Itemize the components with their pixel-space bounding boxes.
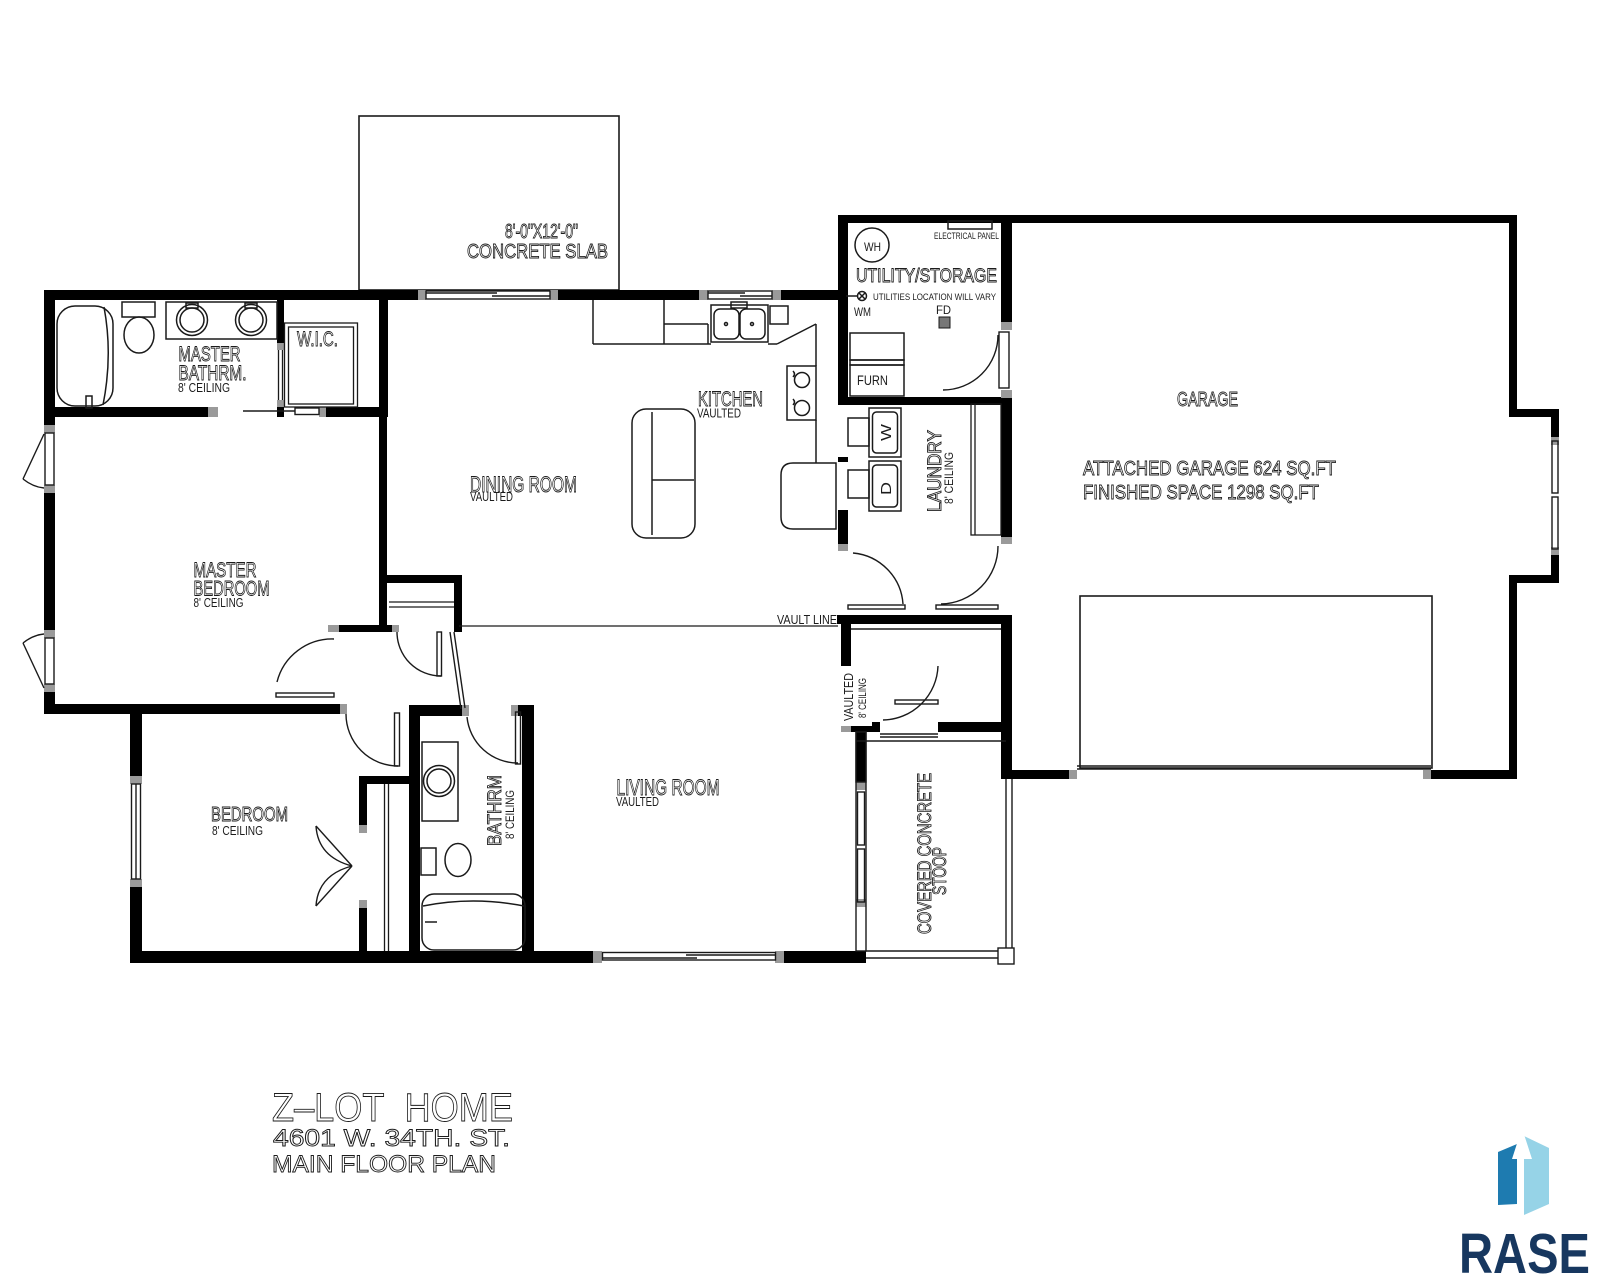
svg-text:VAULTED: VAULTED: [842, 673, 856, 721]
svg-text:8'-0"X12'-0": 8'-0"X12'-0": [505, 221, 578, 243]
svg-text:8' CEILING: 8' CEILING: [178, 380, 230, 395]
svg-text:8' CEILING: 8' CEILING: [212, 823, 263, 838]
svg-text:VAULTED: VAULTED: [470, 489, 513, 504]
svg-text:STOOP: STOOP: [930, 847, 951, 895]
svg-text:UTILITIES LOCATION WILL VARY: UTILITIES LOCATION WILL VARY: [873, 292, 997, 303]
svg-text:FURN: FURN: [857, 372, 888, 388]
svg-text:FD: FD: [936, 303, 951, 317]
svg-text:VAULT LINE: VAULT LINE: [777, 613, 837, 627]
svg-text:8' CEILING: 8' CEILING: [857, 678, 869, 718]
svg-text:WM: WM: [854, 305, 871, 319]
svg-text:8' CEILING: 8' CEILING: [194, 595, 244, 610]
svg-text:WH: WH: [864, 240, 881, 254]
svg-text:D: D: [878, 482, 895, 495]
svg-text:GARAGE: GARAGE: [1177, 389, 1238, 411]
svg-text:Z–LOT HOME: Z–LOT HOME: [272, 1086, 513, 1130]
svg-text:UTILITY/STORAGE: UTILITY/STORAGE: [856, 266, 997, 287]
svg-text:ELECTRICAL PANEL: ELECTRICAL PANEL: [934, 231, 999, 241]
svg-text:FINISHED SPACE 1298 SQ.FT: FINISHED SPACE 1298 SQ.FT: [1083, 482, 1319, 504]
svg-text:W: W: [878, 423, 895, 441]
svg-text:RASE: RASE: [1459, 1222, 1590, 1280]
svg-text:8' CEILING: 8' CEILING: [942, 452, 956, 504]
svg-text:VAULTED: VAULTED: [697, 406, 741, 421]
svg-text:ATTACHED GARAGE 624 SQ.FT: ATTACHED GARAGE 624 SQ.FT: [1083, 458, 1336, 480]
svg-text:VAULTED: VAULTED: [616, 794, 659, 809]
svg-text:CONCRETE SLAB: CONCRETE SLAB: [467, 241, 608, 263]
svg-text:8' CEILING: 8' CEILING: [503, 790, 517, 839]
svg-text:4601 W. 34TH. ST.: 4601 W. 34TH. ST.: [273, 1125, 510, 1152]
svg-text:MAIN FLOOR PLAN: MAIN FLOOR PLAN: [272, 1151, 496, 1178]
svg-text:W.I.C.: W.I.C.: [297, 328, 338, 351]
